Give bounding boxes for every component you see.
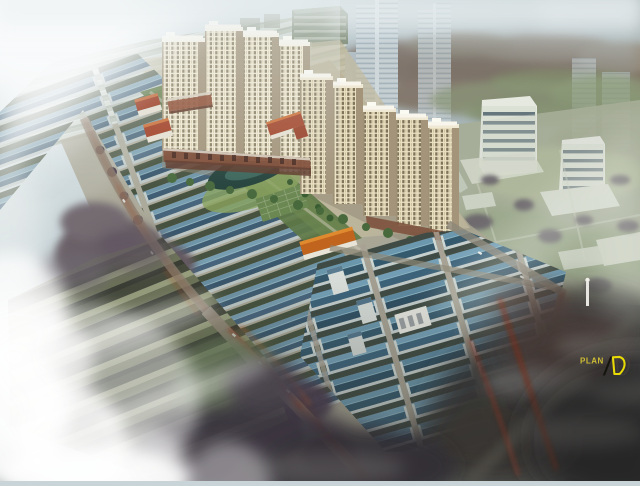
svg-text:PLAN: PLAN [580, 357, 604, 366]
